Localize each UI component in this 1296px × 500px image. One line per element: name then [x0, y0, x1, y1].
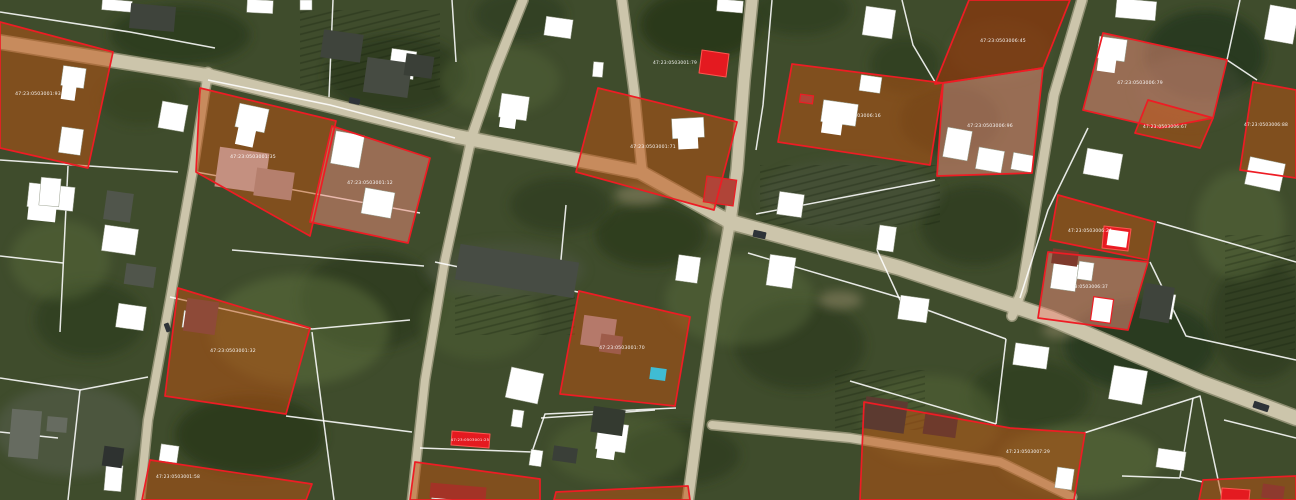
- parcel-label: 47:23:0503006:96: [967, 123, 1013, 129]
- building: [404, 53, 435, 79]
- building: [8, 409, 42, 459]
- parcel-label: 47:23:0503007:29: [1006, 449, 1050, 455]
- building: [1139, 283, 1175, 324]
- building: [46, 416, 67, 433]
- building: [124, 263, 157, 288]
- parcel-label: 47:23:0503006:88: [1244, 122, 1288, 128]
- parcel-label: 47:23:0503006:79: [1117, 80, 1163, 86]
- parcel-label: 47:23:0503006:67: [1143, 124, 1187, 130]
- building: [129, 3, 176, 32]
- vegetation-patch: [10, 220, 110, 300]
- building: [102, 446, 125, 469]
- parcel-label: 47:23:0503001:58: [156, 474, 200, 480]
- building: [596, 442, 616, 460]
- parcel-polygon-p8b[interactable]: [1038, 252, 1148, 330]
- parcel-label: 47:23:0503006:24: [1068, 228, 1112, 234]
- building: [766, 254, 796, 288]
- building: [777, 191, 805, 217]
- parcel-label: 47:23:0503006:16: [835, 113, 881, 119]
- building: [300, 0, 312, 10]
- building: [39, 177, 61, 207]
- parcel-label: 47:23:0503006:45: [980, 38, 1026, 44]
- building: [1115, 0, 1157, 21]
- building: [675, 255, 700, 284]
- building: [505, 367, 544, 404]
- building: [876, 225, 896, 252]
- parcel-label: 47:23:0503001:70: [599, 345, 645, 351]
- building: [529, 449, 543, 467]
- building: [101, 225, 138, 255]
- parcel-label: 47:23:0503001:25: [451, 437, 490, 442]
- building: [363, 57, 412, 98]
- building: [862, 6, 896, 39]
- building: [159, 444, 179, 463]
- building: [544, 16, 573, 39]
- building: [499, 111, 517, 129]
- parcel-label: 47:23:0503001:79: [653, 60, 697, 66]
- building: [104, 464, 123, 491]
- building: [247, 0, 274, 14]
- building: [1013, 343, 1050, 370]
- building: [717, 0, 744, 13]
- parcel-label: 47:23:0503001:71: [630, 144, 676, 150]
- parcel-label: 47:23:0503006:37: [1064, 284, 1108, 290]
- dirt-patch: [818, 291, 862, 309]
- building: [103, 190, 134, 222]
- map-viewport[interactable]: 47:23:0503001:9347:23:0503001:3547:23:05…: [0, 0, 1296, 500]
- parcel-polygon-p18s[interactable]: [1221, 488, 1250, 500]
- building: [1108, 365, 1147, 404]
- building: [158, 101, 188, 132]
- building: [115, 303, 146, 331]
- parcel-label: 47:23:0503001:32: [210, 348, 256, 354]
- building: [511, 409, 524, 427]
- garden-rows-patch: [455, 295, 575, 335]
- building: [320, 29, 364, 62]
- vegetation-patch: [510, 177, 610, 233]
- building: [590, 406, 625, 436]
- parcel-label: 47:23:0503001:93: [15, 91, 61, 97]
- parcel-polygon-p4[interactable]: [699, 50, 729, 77]
- building: [897, 295, 929, 323]
- parcel-label: 47:23:0503001:12: [347, 180, 393, 186]
- building: [1156, 448, 1186, 471]
- building: [592, 62, 603, 78]
- parcel-polygon-p7b[interactable]: [937, 68, 1043, 176]
- parcel-label: 47:23:0503001:35: [230, 154, 276, 160]
- map-image[interactable]: 47:23:0503001:9347:23:0503001:3547:23:05…: [0, 0, 1296, 500]
